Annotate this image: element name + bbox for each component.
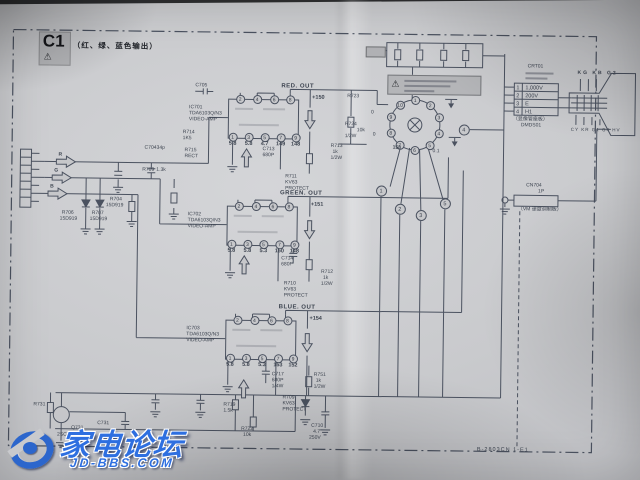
ic-pin: 8 [286,95,295,104]
pin-voltage: 149 [273,141,289,147]
part-label: 1/2W [330,156,342,162]
part-label: 10k [357,128,365,134]
pin-voltage: 5.8 [225,141,241,147]
pin-voltage: 5.8 [223,248,239,254]
part-label: RECT [184,154,198,160]
part-label: 1K5 [183,136,192,142]
part-label: R723 [347,94,359,100]
pin-voltage: 150 [271,248,287,254]
pin-voltage: 152 [285,362,301,368]
pin-voltage: 5.8 [241,141,257,147]
part-label: R724 [345,122,357,128]
socket-pin: 6 [410,145,419,154]
part-label: 15D919 [106,203,124,209]
part-label: C704 [145,146,157,152]
blue-out-label: BLUE. OUT [279,304,316,310]
vm-conn-pins: 1P [538,189,544,195]
table-cell: 200V [525,93,538,99]
part-label: 1/2W [345,134,357,140]
doc-ref: B-2803CN 1-E1 [477,447,529,454]
signal-g: G [54,169,58,175]
pin-voltage: 153 [270,362,286,368]
red-out-voltage: +150 [312,95,324,101]
ic-pin: 8 [284,202,293,211]
table-cell: H1 [525,109,532,115]
part-label: R709 [142,168,154,174]
ref-circle: 1 [375,185,386,196]
left-connector [20,149,32,207]
table-cell: 2 [516,93,519,99]
vm-board-label: （VM 速度调制板） [518,207,562,213]
pin-voltage: 5.8 [222,362,238,368]
part-label: 1/4W [272,384,284,390]
part-label: 10k [243,433,251,439]
part-label: 680P [281,262,293,268]
socket-pin: 4 [434,129,443,138]
watermark-site: JD-BBS.COM [69,456,174,470]
ic-pin: 2 [233,315,242,324]
board-boundary-dashed [517,211,520,449]
protect-label: R710KV63PROTECT [284,280,308,298]
socket-voltage: 0 [371,110,374,116]
ic-pin: 6 [267,316,276,325]
page-title-note: （红、绿、蓝色输出） [73,40,158,52]
pin-voltage: 5.8 [239,248,255,254]
channel-red: RED. OUT +150 IC701TDA6103Q/N3VIDEO-AMP … [180,80,353,184]
ic703-label: IC703TDA6103Q/N3VIDEO-AMP [186,325,228,344]
ic-pin: 4 [250,315,259,324]
ref-circle: 2 [394,203,405,214]
part-label: 34p [157,146,165,152]
ic-pin: 6 [270,95,279,104]
vm-connector [514,195,558,207]
part-label: 1.3k [156,168,166,174]
socket-pin: 10 [396,100,405,109]
table-cell: 4 [516,109,519,115]
pin-voltage: 5.8 [238,362,254,368]
ic-pin: 4 [253,94,262,103]
pin-voltage: 5.3 [255,248,271,254]
socket-pin: 9 [386,112,395,121]
ref-circle: 4 [458,124,469,135]
table-cell: 3 [516,101,519,107]
part-label: C705 [195,83,207,89]
part-label: R731 [33,402,45,408]
title-block: C1 ⚠ [39,31,71,65]
part-label: 15D919 [60,217,78,223]
watermark-logo-icon [10,430,54,470]
warning-triangle-icon: ⚠ [391,79,399,90]
table-cell: 1,000V [525,85,543,91]
table-cell: 1 [516,85,519,91]
ic-pin: 4 [251,201,260,210]
blue-out-voltage: +154 [309,316,321,322]
socket-pin: 8 [386,128,395,137]
table-cell: E [525,101,529,107]
part-label: 1.5k [223,409,233,415]
spark-gap-icon [448,103,459,146]
pin-voltage: 148 [286,248,302,254]
part-label: 15D919 [90,217,108,223]
pin-voltage: 5.3 [254,362,270,368]
photo-of-schematic: C1 ⚠ （红、绿、蓝色输出） RED. OUT +150 IC701TDA61… [0,0,640,480]
part-label: 1/2W [321,282,333,288]
ic-pin: 2 [236,94,245,103]
part-label: 680P [262,153,274,159]
signal-b: B [50,185,54,191]
watermark: 家电论坛 JD-BBS.COM [4,424,214,480]
top-connector [366,46,386,57]
pin-voltage: 148 [288,141,304,147]
crt-board-ref: DMDS01 [521,123,541,129]
socket-pin: 3 [434,113,443,122]
ic701-label: IC701TDA6103Q/N3VIDEO-AMP [189,104,231,123]
protect-label: R709KV63PROTECT [282,394,306,412]
red-out-label: RED. OUT [281,83,314,89]
part-label: 250V [309,436,321,442]
crt-ref: CRT01 [528,64,544,70]
green-out-label: GREEN. OUT [280,190,322,197]
ic-pin: 6 [268,202,277,211]
ic-pin: 2 [234,201,243,210]
page-title: C1 [43,31,65,51]
socket-voltage: 158 [393,146,401,152]
ic-pin: 8 [283,316,292,325]
part-label: 1/2W [314,385,326,391]
ref-circle: 5 [439,198,450,209]
schematic-drawing: C1 ⚠ （红、绿、蓝色输出） RED. OUT +150 IC701TDA61… [0,0,640,480]
socket-voltage: 0 [373,132,376,138]
signal-r: R [58,153,62,159]
socket-pin: 1 [411,95,420,104]
gun-labels-bottom: CY KR G1 G4 HV [571,127,621,133]
socket-pin: 2 [426,101,435,110]
warning-note-box: ⚠ [387,75,481,96]
warning-triangle-icon: ⚠ [44,51,52,62]
gun-labels-top: KG KB G2 [577,71,617,77]
ic702-label: IC702TDA6103Q/N3VIDEO-AMP [188,211,230,230]
green-out-voltage: +151 [311,202,323,208]
ref-circle: 3 [415,209,426,220]
socket-voltage: 0.1 [433,149,440,155]
